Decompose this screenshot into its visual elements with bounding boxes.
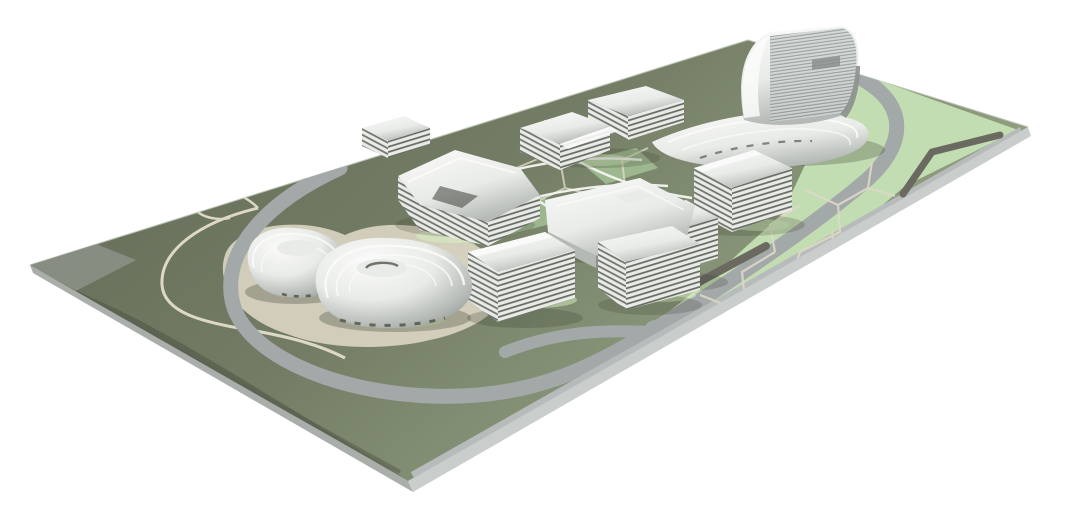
landmark-tower — [741, 26, 860, 125]
scene-canvas — [0, 0, 1080, 530]
building-slab-south — [598, 226, 702, 315]
tower-louvers — [770, 28, 856, 122]
site-model-render — [0, 0, 1080, 530]
